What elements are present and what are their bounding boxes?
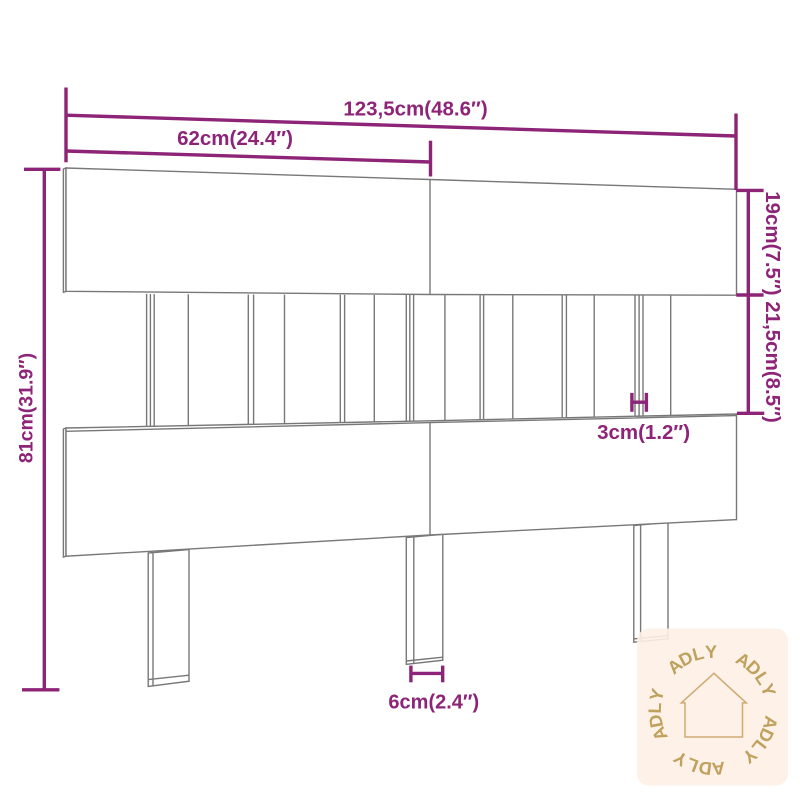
svg-text:81cm(31.9″): 81cm(31.9″) [16, 353, 38, 463]
svg-text:L: L [645, 702, 665, 714]
svg-text:19cm(7.5″) 21,5cm(8.5″): 19cm(7.5″) 21,5cm(8.5″) [761, 191, 784, 423]
svg-text:3cm(1.2″): 3cm(1.2″) [597, 421, 690, 444]
svg-text:123,5cm(48.6″): 123,5cm(48.6″) [343, 98, 487, 121]
svg-text:6cm(2.4″): 6cm(2.4″) [388, 692, 479, 714]
svg-text:62cm(24.4″): 62cm(24.4″) [177, 127, 293, 150]
svg-text:Y: Y [705, 642, 718, 662]
